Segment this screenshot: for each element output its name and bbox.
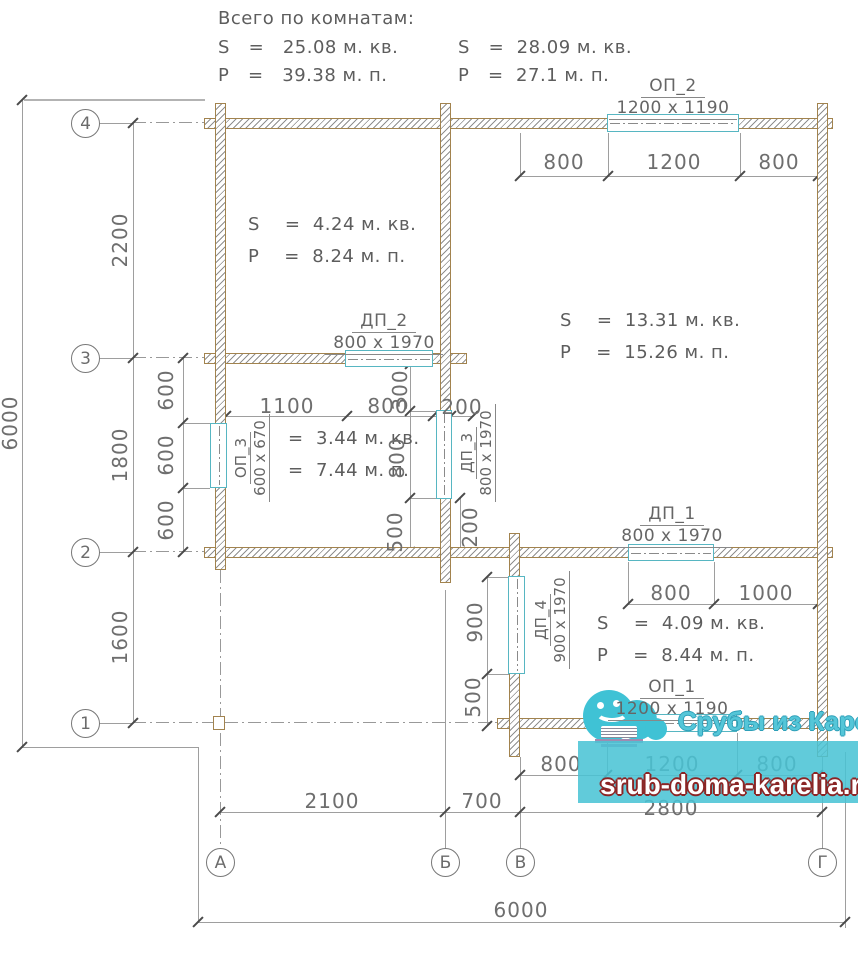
label-dp1-name: ДП_1 — [640, 504, 703, 526]
summary-title: Всего по комнатам: — [218, 8, 414, 29]
dim-dp4-900: 900 — [463, 601, 487, 642]
window-op3 — [210, 423, 227, 488]
summary-s2: S = 28.09 м. кв. — [458, 37, 632, 58]
label-op1-name: ОП_1 — [640, 677, 703, 699]
room4-perimeter: P = 8.44 м. п. — [597, 645, 755, 666]
leader-col-v — [520, 757, 521, 848]
axis-circle-2: 2 — [71, 538, 100, 567]
dim-total-6000: 6000 — [494, 898, 549, 922]
dim-mid-1100: 1100 — [260, 394, 315, 418]
label-op2-size: 1200 x 1190 — [609, 98, 738, 120]
dim-top-800b: 800 — [758, 150, 799, 174]
axis-1-line — [133, 722, 497, 723]
label-op2: ОП_2 1200 x 1190 — [598, 76, 748, 120]
leader-1 — [99, 723, 133, 724]
label-dp1-size: 800 x 1970 — [613, 526, 731, 548]
dim-dp1-1000: 1000 — [739, 581, 794, 605]
dp1-ext-1 — [628, 562, 629, 604]
dim-left-1800: 1800 — [108, 428, 132, 483]
leader-col-a — [220, 733, 221, 848]
label-op3-name: ОП_3 — [232, 432, 251, 484]
outline-bottom-left-h — [22, 747, 198, 748]
dim-600-b: 600 — [154, 434, 178, 475]
leader-4 — [99, 123, 133, 124]
bottom-total-dim-line — [198, 922, 845, 923]
axis-circle-3: 3 — [71, 344, 100, 373]
axis-3-line — [133, 357, 204, 358]
summary-p2: P = 27.1 м. п. — [458, 65, 609, 86]
door-centerline — [631, 553, 711, 554]
dim-dp1-800: 800 — [650, 581, 691, 605]
dim-row-700: 700 — [461, 789, 502, 813]
win600-dim-line — [183, 358, 184, 552]
logo-tub-icon — [601, 726, 637, 738]
dim-600-a: 600 — [154, 369, 178, 410]
tr-ext-2 — [608, 133, 609, 176]
dim-mid-300: 300 — [388, 369, 412, 410]
door-centerline — [348, 359, 430, 360]
top-right-dim-line — [520, 176, 818, 177]
label-dp1: ДП_1 800 x 1970 — [597, 504, 747, 548]
outline-bottom-left-v — [198, 747, 199, 922]
dim-top-1200: 1200 — [647, 150, 702, 174]
dim-dp4-500: 500 — [461, 676, 485, 717]
dim-db-500: 500 — [383, 511, 407, 552]
cloud-icon — [645, 718, 667, 740]
room2-area: S = 13.31 м. кв. — [560, 310, 740, 331]
top-level-line — [24, 99, 205, 101]
label-op3: ОП_3 600 x 670 — [232, 403, 270, 513]
watermark-brand: Срубы из Карелии — [678, 706, 858, 737]
room4-area: S = 4.09 м. кв. — [597, 613, 765, 634]
dim-left-2200: 2200 — [108, 213, 132, 268]
door-centerline — [444, 413, 445, 496]
axis-2-line — [133, 551, 204, 552]
watermark-url: srub-doma-karelia.ru — [578, 769, 858, 801]
door-centerline — [517, 579, 518, 671]
label-op3-size: 600 x 670 — [251, 414, 270, 502]
dim-left-6000: 6000 — [0, 396, 22, 451]
axis-circle-4: 4 — [71, 109, 100, 138]
dim-600-c: 600 — [154, 499, 178, 540]
dp1-ext-2 — [714, 562, 715, 604]
left-dims-line — [133, 123, 134, 723]
summary-s1: S = 25.08 м. кв. — [218, 37, 398, 58]
dim-row-2100: 2100 — [305, 789, 360, 813]
door-dp4 — [508, 576, 525, 674]
label-dp4-size: 900 x 1970 — [551, 571, 570, 668]
axis-circle-b: Б — [431, 848, 460, 877]
room2-perimeter: P = 15.26 м. п. — [560, 342, 730, 363]
db-ext-b — [410, 498, 438, 499]
watermark-banner: srub-doma-karelia.ru — [578, 741, 858, 803]
dim-top-800a: 800 — [543, 150, 584, 174]
wall-axis-g — [817, 103, 828, 757]
axis-circle-1: 1 — [71, 709, 100, 738]
wall-axis-a — [215, 103, 226, 570]
door-dp3 — [436, 410, 452, 499]
tr-ext-3 — [740, 133, 741, 176]
left-total-dim-line — [22, 100, 23, 747]
dim-db-800: 800 — [385, 437, 409, 478]
dp4-ext-a — [487, 577, 509, 578]
axis-4-line — [133, 122, 204, 123]
label-dp2: ДП_2 800 x 1970 — [309, 311, 459, 355]
win600-ext-a — [183, 423, 210, 424]
axis-a-line — [220, 570, 221, 716]
dp4-ext-b — [487, 674, 509, 675]
leader-3 — [99, 358, 133, 359]
window-centerline — [219, 426, 220, 485]
dim-left-1600: 1600 — [108, 610, 132, 665]
summary-p1: P = 39.38 м. п. — [218, 65, 388, 86]
tr-ext-1 — [520, 133, 521, 176]
dim-mid-200: 200 — [441, 395, 482, 419]
post-a1 — [213, 716, 225, 730]
room1-area: S = 4.24 м. кв. — [248, 214, 416, 235]
label-dp4-name: ДП_4 — [532, 594, 551, 646]
dp4-dim-line — [487, 577, 488, 726]
label-dp4: ДП_4 900 x 1970 — [532, 565, 570, 675]
axis-circle-a: А — [206, 848, 235, 877]
axis-circle-v: В — [506, 848, 535, 877]
label-dp2-name: ДП_2 — [352, 311, 415, 333]
window-centerline — [610, 123, 736, 124]
room1-perimeter: P = 8.24 м. п. — [248, 246, 406, 267]
label-dp2-size: 800 x 1970 — [325, 333, 443, 355]
dim-bw-800a: 800 — [540, 752, 581, 776]
axis-circle-g: Г — [808, 848, 837, 877]
leader-2 — [99, 552, 133, 553]
floor-plan: Всего по комнатам: S = 25.08 м. кв. P = … — [0, 0, 858, 970]
label-dp3-name: ДП_3 — [458, 427, 477, 479]
label-op2-name: ОП_2 — [641, 76, 704, 98]
win600-ext-b — [183, 488, 210, 489]
dim-db-200: 200 — [458, 506, 482, 547]
